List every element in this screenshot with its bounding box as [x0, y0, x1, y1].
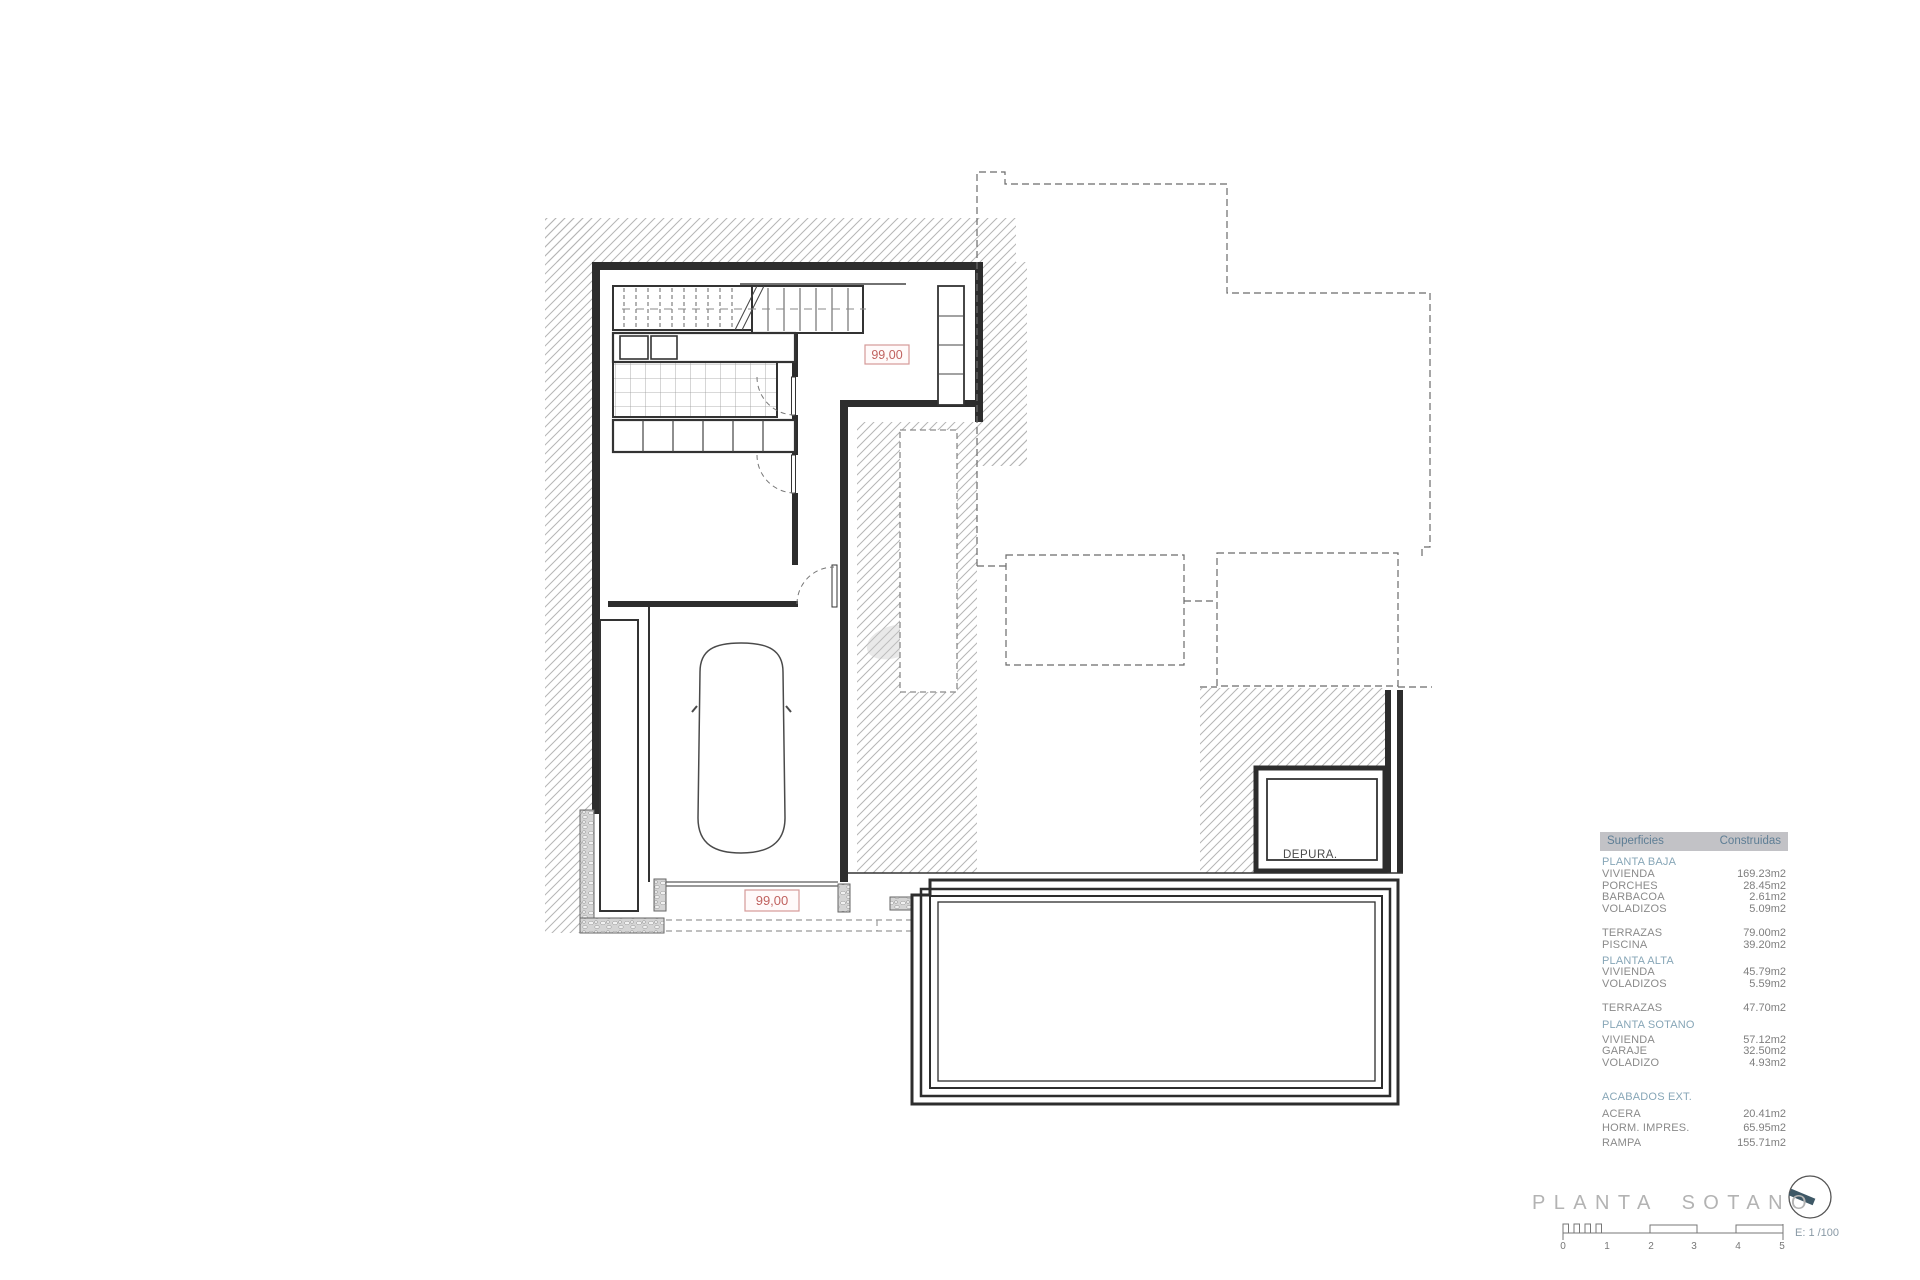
table-row: VOLADIZOS 5.09m2	[1600, 904, 1788, 916]
table-header-surfaces: Superficies	[1607, 832, 1664, 851]
drawing-sheet: DEPURA. 99,00 99,00 0 1 2 3 4 5 E: 1 /10…	[0, 0, 1920, 1280]
lightwell-dashed-outline	[900, 430, 957, 692]
table-row: ACERA 20.41m2	[1600, 1107, 1788, 1122]
tiled-room	[613, 362, 777, 417]
area-label: PISCINA	[1600, 940, 1647, 952]
table-row: TERRAZAS 79.00m2	[1600, 928, 1788, 940]
area-value: 20.41m2	[1743, 1107, 1788, 1122]
area-value: 47.70m2	[1743, 1003, 1788, 1015]
area-label: RAMPA	[1600, 1136, 1641, 1151]
table-row: HORM. IMPRES. 65.95m2	[1600, 1121, 1788, 1136]
area-label: TERRAZAS	[1600, 1003, 1662, 1015]
area-value: 65.95m2	[1743, 1121, 1788, 1136]
area-label: VOLADIZO	[1600, 1058, 1659, 1070]
scale-ratio-label: E: 1 /100	[1795, 1227, 1839, 1239]
car-outline	[698, 643, 785, 853]
table-header: Superficies Construidas	[1600, 832, 1788, 851]
level-marker-upper: 99,00	[865, 345, 909, 364]
staircase	[613, 284, 906, 333]
depura-room: DEPURA.	[1256, 768, 1385, 871]
table-row: RAMPA 155.71m2	[1600, 1136, 1788, 1151]
closet-row-bottom	[613, 420, 795, 452]
area-label: VOLADIZOS	[1600, 979, 1667, 991]
area-label: VOLADIZOS	[1600, 904, 1667, 916]
garage-door-line	[665, 882, 838, 886]
table-row: VIVIENDA 169.23m2	[1600, 869, 1788, 881]
scale-tick-1: 1	[1604, 1241, 1610, 1252]
table-row: TERRAZAS 47.70m2	[1600, 1003, 1788, 1015]
depura-label: DEPURA.	[1283, 849, 1338, 861]
area-label: ACERA	[1600, 1107, 1641, 1122]
ramp-dashed-edges	[666, 920, 912, 931]
table-row: ACABADOS EXT.	[1600, 1092, 1788, 1104]
area-value: 39.20m2	[1743, 940, 1788, 952]
planter-strip	[600, 620, 638, 911]
scale-tick-2: 2	[1648, 1241, 1654, 1252]
shelving-column	[938, 286, 964, 405]
table-row: PLANTA SOTANO	[1600, 1020, 1788, 1032]
table-row: PISCINA 39.20m2	[1600, 940, 1788, 952]
garage	[600, 607, 838, 911]
level-marker-upper-text: 99,00	[871, 348, 902, 362]
area-value: 5.09m2	[1749, 904, 1788, 916]
scale-tick-0: 0	[1560, 1241, 1566, 1252]
section-label: PLANTA SOTANO	[1600, 1020, 1695, 1032]
area-value: 155.71m2	[1737, 1136, 1788, 1151]
area-label: HORM. IMPRES.	[1600, 1121, 1690, 1136]
area-label: TERRAZAS	[1600, 928, 1662, 940]
level-marker-lower: 99,00	[745, 890, 799, 911]
level-marker-lower-text: 99,00	[756, 893, 789, 908]
section-label: ACABADOS EXT.	[1600, 1092, 1692, 1104]
closet-row-top	[613, 333, 795, 362]
scale-tick-5: 5	[1779, 1241, 1785, 1252]
table-row: VOLADIZOS 5.59m2	[1600, 979, 1788, 991]
upper-floor-dashed-outline	[977, 172, 1432, 687]
car-mirrors	[692, 706, 791, 712]
area-value: 169.23m2	[1737, 869, 1788, 881]
scale-tick-4: 4	[1735, 1241, 1741, 1252]
swimming-pool	[912, 880, 1398, 1104]
table-header-built: Construidas	[1720, 832, 1781, 851]
scale-bar	[1563, 1224, 1783, 1240]
area-value: 79.00m2	[1743, 928, 1788, 940]
scale-bar-numbers: 0 1 2 3 4 5	[1560, 1241, 1785, 1252]
scale-tick-3: 3	[1691, 1241, 1697, 1252]
area-label: VIVIENDA	[1600, 869, 1655, 881]
sheet-title: PLANTA SOTANO	[1532, 1192, 1815, 1215]
table-row: VOLADIZO 4.93m2	[1600, 1058, 1788, 1070]
areas-summary-table: Superficies Construidas PLANTA BAJA VIVI…	[1600, 832, 1788, 1150]
area-value: 5.59m2	[1749, 979, 1788, 991]
area-value: 4.93m2	[1749, 1058, 1788, 1070]
